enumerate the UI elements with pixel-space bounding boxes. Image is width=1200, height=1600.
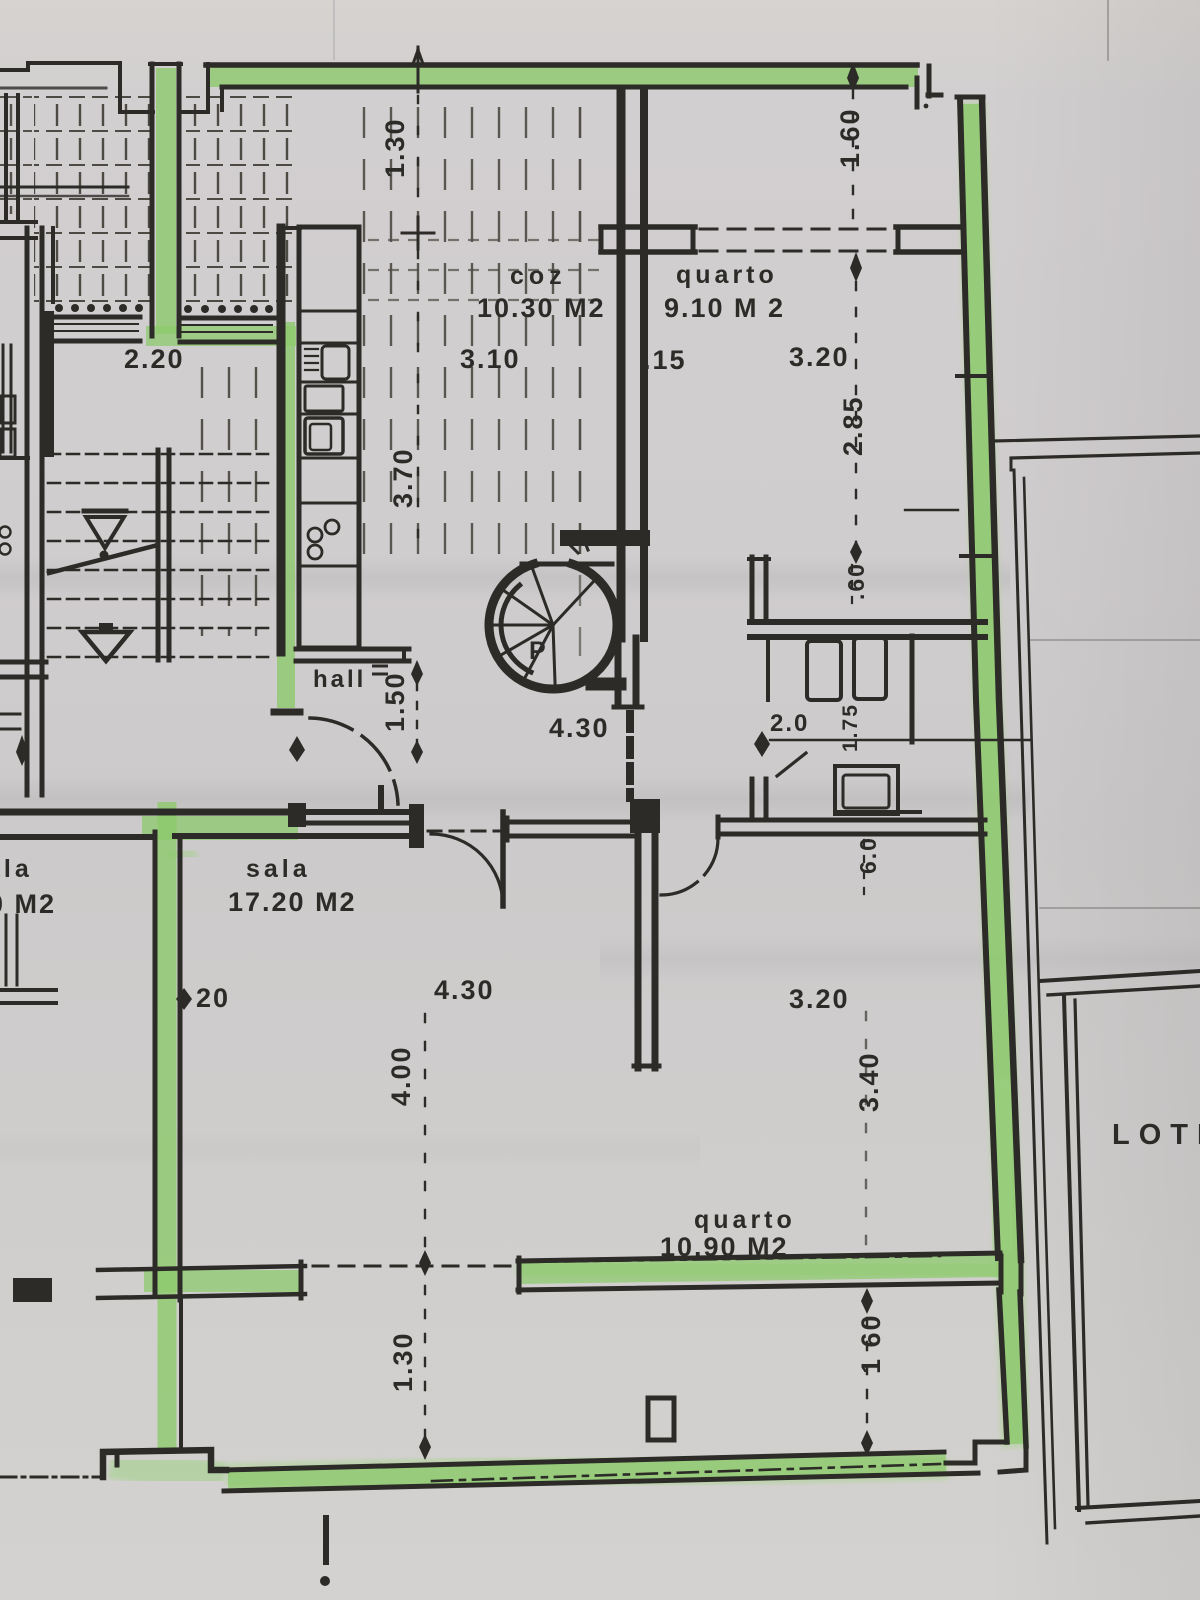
svg-text:4.30: 4.30 (549, 713, 610, 743)
svg-text:3.20: 3.20 (789, 342, 850, 372)
svg-text:quarto: quarto (676, 261, 778, 289)
svg-text:quarto: quarto (694, 1206, 796, 1234)
svg-text:20: 20 (196, 983, 230, 1013)
svg-text:2.0: 2.0 (770, 710, 809, 737)
svg-text:0 M2: 0 M2 (0, 889, 56, 919)
svg-text:1.30: 1.30 (388, 1331, 418, 1392)
svg-text:P: P (529, 637, 548, 665)
svg-text:3.20: 3.20 (789, 984, 850, 1014)
svg-text:17.20 M2: 17.20 M2 (228, 887, 357, 917)
svg-text:4.30: 4.30 (434, 975, 495, 1005)
svg-text:1.60: 1.60 (835, 107, 865, 168)
svg-text:10.90 M2: 10.90 M2 (660, 1232, 789, 1262)
svg-text:10.30 M2: 10.30 M2 (477, 293, 606, 323)
svg-text:1 60: 1 60 (856, 1313, 886, 1374)
svg-text:hall: hall (313, 666, 366, 693)
svg-text:ala: ala (0, 855, 33, 883)
svg-text:.15: .15 (643, 345, 687, 375)
svg-text:2.20: 2.20 (124, 344, 185, 374)
svg-text:LOTE: LOTE (1112, 1119, 1200, 1151)
svg-text:6.0: 6.0 (855, 836, 881, 874)
svg-text:9.10 M 2: 9.10 M 2 (664, 293, 785, 323)
svg-text:.60: .60 (843, 562, 869, 600)
svg-text:3.40: 3.40 (854, 1051, 884, 1112)
svg-text:sala: sala (246, 855, 311, 883)
svg-text:4.00: 4.00 (386, 1045, 416, 1106)
svg-text:3.10: 3.10 (460, 344, 521, 374)
svg-text:coz: coz (510, 262, 567, 290)
svg-text:1.50: 1.50 (380, 671, 410, 732)
svg-text:1.30: 1.30 (380, 117, 410, 178)
svg-text:1.75: 1.75 (839, 703, 862, 752)
svg-text:3.70: 3.70 (388, 447, 418, 508)
svg-text:2.85: 2.85 (838, 395, 868, 456)
